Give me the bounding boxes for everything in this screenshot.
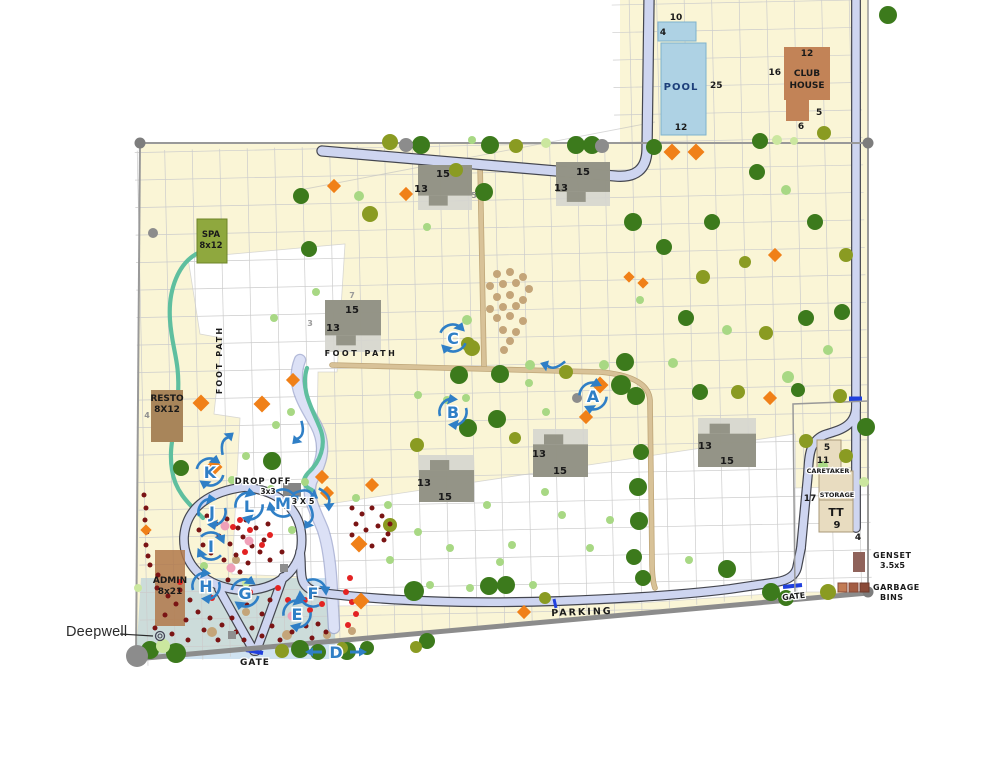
shrub-pale-green	[772, 135, 782, 145]
tree-dark-green	[567, 136, 585, 154]
tree-dark-green	[616, 353, 634, 371]
map-label: 13	[326, 323, 340, 334]
plant-red-dot	[267, 532, 273, 538]
stepping-stone-dot	[506, 268, 514, 276]
plant-dark-red-dot	[370, 544, 375, 549]
tree-dark-green	[173, 460, 189, 476]
grid-line	[78, 0, 96, 768]
map-label: 10	[670, 13, 683, 23]
stepping-stone-dot	[493, 270, 501, 278]
shrub-light-green	[312, 288, 320, 296]
shrub-light-green	[558, 511, 566, 519]
plant-dark-red-dot	[148, 563, 153, 568]
tree-olive	[731, 385, 745, 399]
plant-red-dot	[343, 589, 349, 595]
plant-dark-red-dot	[258, 550, 263, 555]
tree-olive	[759, 326, 773, 340]
plant-dark-red-dot	[360, 512, 365, 517]
shrub-light-green	[384, 501, 392, 509]
plant-dark-red-dot	[220, 623, 225, 628]
plant-red-dot	[230, 524, 236, 530]
plant-dark-red-dot	[234, 553, 239, 558]
gate-bar	[554, 599, 556, 608]
shrub-light-green	[270, 314, 278, 322]
shrub-light-green	[668, 358, 678, 368]
plant-dark-red-dot	[290, 630, 295, 635]
plant-dark-red-dot	[226, 578, 231, 583]
tree-dark-green	[752, 133, 768, 149]
plant-dark-red-dot	[184, 618, 189, 623]
map-label: 13	[417, 478, 431, 489]
plant-dark-red-dot	[238, 570, 243, 575]
map-label: RESTO	[150, 394, 184, 404]
tree-gray	[148, 228, 158, 238]
house-porch-notch	[710, 424, 730, 434]
map-label: SPA	[202, 230, 221, 240]
tree-olive	[559, 365, 573, 379]
tree-olive	[509, 139, 523, 153]
shrub-light-green	[542, 408, 550, 416]
tree-dark-green	[480, 577, 498, 595]
map-label: 13	[414, 184, 428, 195]
shrub-light-green	[386, 556, 394, 564]
map-label: 6	[798, 122, 804, 132]
viewpoint-letter: C	[447, 329, 459, 348]
shrub-light-green	[496, 558, 504, 566]
plant-dark-red-dot	[188, 598, 193, 603]
tree-dark-green	[807, 214, 823, 230]
map-label: 11	[817, 456, 830, 466]
tree-dark-green	[497, 576, 515, 594]
plant-dark-red-dot	[142, 493, 147, 498]
tree-olive	[696, 270, 710, 284]
plant-dark-red-dot	[222, 558, 227, 563]
tree-dark-green	[798, 310, 814, 326]
tree-olive	[739, 256, 751, 268]
genset-building	[853, 552, 865, 572]
map-label: 13	[698, 441, 712, 452]
stepping-stone-dot	[486, 305, 494, 313]
shrub-light-green	[426, 581, 434, 589]
plant-dark-red-dot	[266, 522, 271, 527]
tree-olive	[382, 134, 398, 150]
plant-dark-red-dot	[278, 638, 283, 643]
map-label: 7	[349, 291, 355, 300]
stepping-stone-dot	[512, 302, 520, 310]
plant-dark-red-dot	[241, 535, 246, 540]
shrub-light-green	[446, 544, 454, 552]
viewpoint-letter: F	[308, 584, 319, 603]
tree-gray	[399, 138, 413, 152]
shrub-light-green	[599, 360, 609, 370]
plant-dark-red-dot	[254, 526, 259, 531]
map-label: 4	[660, 28, 666, 38]
plant-red-dot	[345, 622, 351, 628]
grid-line	[106, 0, 124, 768]
tree-dark-green	[293, 188, 309, 204]
viewpoint-letter: E	[292, 605, 303, 624]
house-porch-notch	[430, 460, 449, 470]
stepping-stone-dot	[506, 291, 514, 299]
map-label: 8x21	[158, 587, 183, 597]
tree-dark-green	[678, 310, 694, 326]
club-house-annex-building	[786, 100, 809, 121]
tree-olive	[817, 126, 831, 140]
tree-dark-green	[301, 241, 317, 257]
map-label: 12	[801, 49, 814, 59]
map-label: 5	[824, 443, 830, 453]
tree-dark-green	[656, 239, 672, 255]
grid-line	[876, 0, 894, 768]
plant-dark-red-dot	[324, 630, 329, 635]
plant-dark-red-dot	[280, 550, 285, 555]
shrub-light-green	[525, 360, 535, 370]
plant-dark-red-dot	[153, 626, 158, 631]
plant-red-dot	[237, 517, 243, 523]
viewpoint-letter: D	[329, 643, 342, 662]
garbage-bin-building	[838, 583, 847, 592]
shrub-light-green	[301, 478, 309, 486]
plant-dark-red-dot	[230, 616, 235, 621]
plant-dark-red-dot	[376, 524, 381, 529]
stepping-stone-dot	[506, 337, 514, 345]
tree-dark-green	[692, 384, 708, 400]
shrub-light-green	[541, 488, 549, 496]
shrub-light-green	[722, 325, 732, 335]
plant-dark-red-dot	[350, 533, 355, 538]
map-label: FOOT PATH	[325, 349, 398, 358]
site-plan-svg: ABCEFGHIJKLMDPOOL25121041216CLUBHOUSE56S…	[0, 0, 1000, 768]
shrub-light-green	[423, 223, 431, 231]
map-label: 3x3	[260, 487, 275, 496]
stepping-stone-dot	[500, 346, 508, 354]
viewpoint-letter: B	[447, 403, 459, 422]
map-label: CARETAKER	[807, 467, 850, 475]
viewpoint-letter: L	[244, 497, 254, 516]
grid-line	[986, 0, 1000, 768]
shrub-pale-green	[859, 477, 869, 487]
shrub-light-green	[525, 379, 533, 387]
grid-line	[66, 684, 1000, 704]
plant-dark-red-dot	[316, 622, 321, 627]
shrub-light-green	[468, 136, 476, 144]
tree-olive	[509, 432, 521, 444]
shrub-light-green	[352, 494, 360, 502]
stepping-stone-dot	[207, 627, 217, 637]
map-label: GATE	[240, 658, 270, 668]
grid-line	[67, 739, 1000, 759]
map-label: 15	[576, 167, 590, 178]
stepping-stone-dot	[512, 279, 520, 287]
grid-line	[903, 0, 921, 768]
shrub-light-green	[685, 556, 693, 564]
plant-dark-red-dot	[260, 634, 265, 639]
shrub-light-green	[287, 408, 295, 416]
map-label: GENSET	[873, 551, 911, 560]
plant-dark-red-dot	[163, 613, 168, 618]
plant-dark-red-dot	[260, 612, 265, 617]
map-label: 4	[855, 533, 861, 543]
grid-line	[67, 712, 1000, 732]
tree-olive	[839, 248, 853, 262]
viewpoint-letter: G	[238, 584, 251, 603]
shrub-light-green	[272, 421, 280, 429]
stepping-stone-dot	[512, 328, 520, 336]
shrub-light-green	[414, 528, 422, 536]
tree-dark-green	[412, 136, 430, 154]
plant-dark-red-dot	[364, 528, 369, 533]
shrub-light-green	[782, 371, 794, 383]
tree-dark-green	[481, 136, 499, 154]
shrub-light-green	[462, 394, 470, 402]
boundary-corner-dot	[863, 138, 874, 149]
map-label: 5	[816, 108, 822, 118]
plant-red-dot	[247, 527, 253, 533]
tree-olive	[820, 584, 836, 600]
plant-red-dot	[353, 611, 359, 617]
tree-dark-green	[762, 583, 780, 601]
grid-line	[931, 0, 949, 768]
tree-dark-green	[624, 213, 642, 231]
grid-line	[51, 0, 69, 768]
shrub-light-green	[462, 315, 472, 325]
plant-dark-red-dot	[380, 514, 385, 519]
tree-dark-green	[291, 640, 309, 658]
tree-olive	[839, 449, 853, 463]
tree-olive	[362, 206, 378, 222]
plant-dark-red-dot	[386, 532, 391, 537]
tree-olive	[410, 641, 422, 653]
map-label: 15	[438, 492, 452, 503]
tree-dark-green	[630, 512, 648, 530]
tree-dark-green	[633, 444, 649, 460]
map-label: 13	[554, 183, 568, 194]
tree-dark-green	[263, 452, 281, 470]
stepping-stone-dot	[486, 282, 494, 290]
site-plan-page: ABCEFGHIJKLMDPOOL25121041216CLUBHOUSE56S…	[0, 0, 1000, 768]
shrub-light-green	[466, 584, 474, 592]
tree-dark-green	[834, 304, 850, 320]
tree-dark-green	[488, 410, 506, 428]
shrub-pale-green	[156, 639, 170, 653]
tree-dark-green	[749, 164, 765, 180]
stepping-stone-dot	[242, 608, 250, 616]
tree-dark-green	[879, 6, 897, 24]
map-label: 5	[471, 191, 477, 200]
map-label: 12	[675, 123, 688, 133]
plant-dark-red-dot	[262, 538, 267, 543]
map-label: 25	[710, 81, 723, 91]
viewpoint-letter: J	[208, 503, 215, 522]
plant-dark-red-dot	[202, 628, 207, 633]
map-label: PARKING	[551, 606, 613, 619]
house-porch-notch	[336, 335, 356, 345]
map-label: ADMIN	[153, 576, 187, 586]
map-label: 15	[553, 466, 567, 477]
tree-olive	[449, 163, 463, 177]
tree-dark-green	[791, 383, 805, 397]
house-porch-notch	[429, 196, 448, 206]
shrub-light-green	[414, 391, 422, 399]
shrub-light-green	[606, 516, 614, 524]
tree-dark-green	[635, 570, 651, 586]
shrub-pale-green	[541, 138, 551, 148]
map-label: 15	[436, 169, 450, 180]
plant-dark-red-dot	[174, 602, 179, 607]
tree-olive	[275, 644, 289, 658]
grid-line	[66, 657, 1000, 677]
stepping-stone-dot	[493, 293, 501, 301]
shrub-light-green	[288, 526, 296, 534]
map-label: 13	[532, 449, 546, 460]
tree-dark-green	[404, 581, 424, 601]
viewpoint-letter: A	[587, 387, 600, 406]
plant-dark-red-dot	[201, 543, 206, 548]
tree-olive	[539, 592, 551, 604]
stepping-stone-dot	[348, 627, 356, 635]
plant-dark-red-dot	[268, 558, 273, 563]
plant-dark-red-dot	[196, 610, 201, 615]
tree-olive	[410, 438, 424, 452]
plant-dark-red-dot	[250, 626, 255, 631]
map-label: 9	[834, 520, 841, 531]
plant-dark-red-dot	[228, 542, 233, 547]
marker-gray-square	[280, 564, 288, 572]
map-label: BINS	[880, 593, 904, 602]
stepping-stone-dot	[499, 280, 507, 288]
viewpoint-letter: K	[204, 463, 217, 482]
shrub-light-green	[354, 191, 364, 201]
map-label: 16	[768, 68, 781, 78]
plant-dark-red-dot	[354, 522, 359, 527]
plant-red-dot	[307, 607, 313, 613]
marker-gray-square	[228, 631, 236, 639]
map-label: 4	[144, 411, 150, 420]
shrub-light-green	[483, 501, 491, 509]
plant-dark-red-dot	[350, 506, 355, 511]
tree-olive	[799, 434, 813, 448]
tree-dark-green	[626, 549, 642, 565]
plant-dark-red-dot	[216, 638, 221, 643]
map-label: 3	[307, 319, 313, 328]
tree-dark-green	[646, 139, 662, 155]
map-label: 8X12	[154, 405, 180, 415]
plant-dark-red-dot	[144, 543, 149, 548]
grid-line	[958, 0, 976, 768]
tree-dark-green	[611, 375, 631, 395]
garbage-bin-building	[860, 583, 869, 592]
plant-dark-red-dot	[143, 518, 148, 523]
stepping-stone-dot	[519, 317, 527, 325]
map-label: POOL	[664, 82, 699, 93]
plant-dark-red-dot	[382, 538, 387, 543]
stepping-stone-dot	[506, 312, 514, 320]
viewpoint-letter: H	[199, 577, 212, 596]
tree-dark-green	[491, 365, 509, 383]
map-label: 8x12	[199, 241, 222, 251]
stepping-stone-dot	[519, 296, 527, 304]
stepping-stone-dot	[493, 314, 501, 322]
shrub-light-green	[586, 544, 594, 552]
shrub-pale-green	[790, 137, 798, 145]
deepwell-label: Deepwell	[66, 624, 127, 640]
map-label: 3.5x5	[880, 561, 905, 570]
tree-dark-green	[629, 478, 647, 496]
stepping-stone-dot	[519, 273, 527, 281]
plant-dark-red-dot	[208, 616, 213, 621]
tree-dark-green	[857, 418, 875, 436]
shrub-light-green	[781, 185, 791, 195]
shrub-light-green	[529, 581, 537, 589]
house-porch-notch	[544, 434, 563, 444]
plant-pink-dot	[227, 564, 236, 573]
plant-red-dot	[242, 549, 248, 555]
map-label: TT	[828, 506, 844, 519]
tree-dark-green	[718, 560, 736, 578]
shrub-light-green	[823, 345, 833, 355]
tree-olive	[833, 389, 847, 403]
map-label: HOUSE	[789, 81, 824, 91]
map-label: STORAGE	[820, 491, 854, 499]
viewpoint-letter: I	[208, 537, 214, 556]
plant-red-dot	[275, 585, 281, 591]
plant-dark-red-dot	[197, 528, 202, 533]
plant-dark-red-dot	[246, 561, 251, 566]
map-label: 15	[345, 305, 359, 316]
garbage-bin-building	[849, 583, 858, 592]
map-label: FOOT PATH	[215, 326, 224, 394]
plant-dark-red-dot	[186, 638, 191, 643]
plant-dark-red-dot	[270, 624, 275, 629]
map-label: 15	[720, 456, 734, 467]
house-porch-notch	[567, 192, 586, 202]
shrub-pale-green	[134, 584, 142, 592]
viewpoint-letter: M	[275, 494, 291, 513]
shrub-light-green	[242, 452, 250, 460]
plant-dark-red-dot	[268, 598, 273, 603]
plant-dark-red-dot	[236, 526, 241, 531]
plant-dark-red-dot	[370, 506, 375, 511]
plant-red-dot	[319, 601, 325, 607]
plant-red-dot	[347, 575, 353, 581]
gate-bar	[783, 585, 802, 587]
tree-dark-green	[704, 214, 720, 230]
plant-pink-dot	[245, 537, 254, 546]
shrub-light-green	[508, 541, 516, 549]
map-label: 17	[804, 494, 817, 504]
plant-dark-red-dot	[388, 522, 393, 527]
stepping-stone-dot	[499, 326, 507, 334]
boundary-corner-dot	[135, 138, 146, 149]
shrub-light-green	[636, 296, 644, 304]
tree-dark-green	[450, 366, 468, 384]
plant-dark-red-dot	[242, 638, 247, 643]
tree-dark-green	[475, 183, 493, 201]
tree-gray	[126, 645, 148, 667]
map-label: CLUB	[794, 69, 820, 79]
stepping-stone-dot	[499, 303, 507, 311]
plant-dark-red-dot	[310, 636, 315, 641]
stepping-stone-dot	[525, 285, 533, 293]
plant-dark-red-dot	[146, 554, 151, 559]
map-label: DROP OFF	[235, 477, 292, 487]
plant-dark-red-dot	[170, 632, 175, 637]
plant-red-dot	[259, 542, 265, 548]
map-label: 3 X 5	[292, 497, 315, 506]
tree-gray	[595, 139, 609, 153]
plant-dark-red-dot	[144, 506, 149, 511]
map-label: GARBAGE	[873, 583, 920, 592]
